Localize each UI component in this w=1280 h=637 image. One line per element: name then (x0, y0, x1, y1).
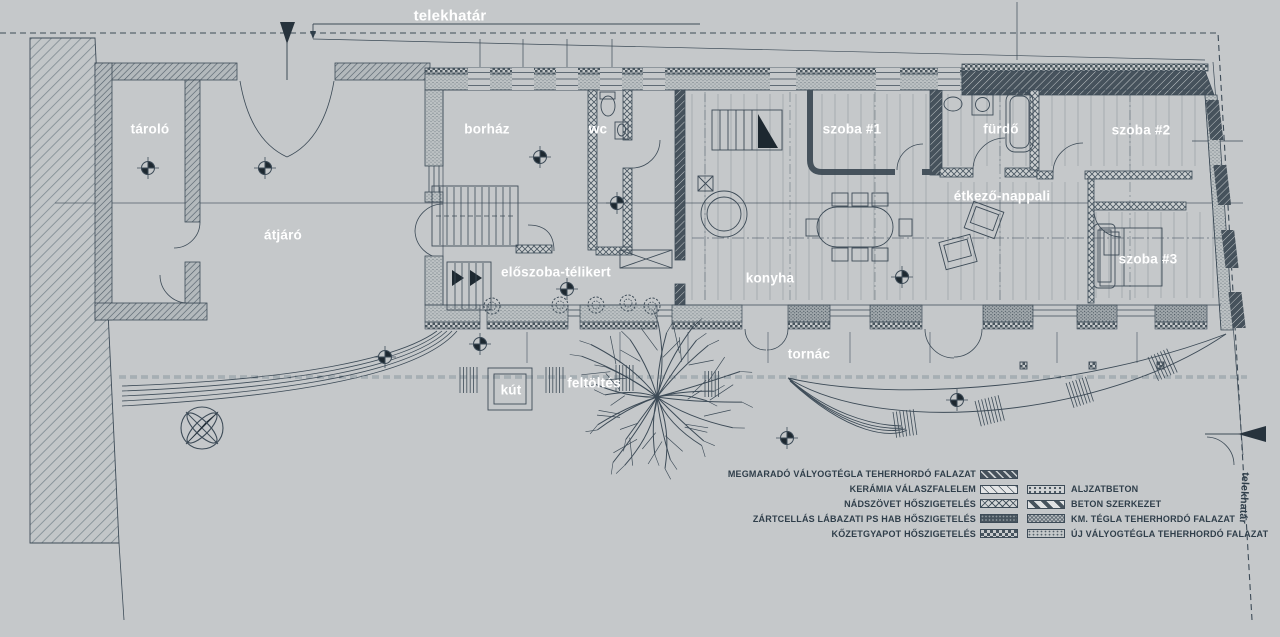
legend-row: BETON SZERKEZET (1027, 497, 1268, 512)
legend-row: ZÁRTCELLÁS LÁBAZATI PS HAB HŐSZIGETELÉS (660, 511, 1018, 526)
outbuilding-walls (95, 63, 430, 320)
legend-row: ALJZATBETON (1027, 482, 1268, 497)
legend-row: NÁDSZÖVET HŐSZIGETELÉS (660, 497, 1018, 512)
sofa (1094, 224, 1115, 288)
sink (944, 97, 962, 111)
label-wc: wc (589, 122, 607, 137)
label-konyha: konyha (746, 271, 794, 286)
old-adobe-wall (962, 71, 1214, 95)
swale (788, 334, 1226, 433)
legend-row: KŐZETGYAPOT HŐSZIGETELÉS (660, 526, 1018, 541)
legend-swatch-dot-stipple (1027, 485, 1065, 494)
label-atjaro: átjáró (264, 228, 302, 243)
legend-swatch-dense-dark (980, 514, 1018, 523)
label-tornac: tornác (788, 347, 830, 362)
survey-flag-right (1238, 426, 1266, 442)
legend-swatch-light-stipple (1027, 529, 1065, 538)
legend-left-column: MEGMARADÓ VÁLYOGTÉGLA TEHERHORDÓ FALAZAT… (660, 467, 1018, 541)
legend-row: ÚJ VÁLYOGTÉGLA TEHERHORDÓ FALAZAT (1027, 526, 1268, 541)
staircase (432, 186, 518, 246)
floor-plan-canvas (0, 0, 1280, 637)
label-telekhatar-top: telekhatár (414, 8, 487, 25)
legend-swatch-thin-diagonal (980, 485, 1018, 494)
legend-row: MEGMARADÓ VÁLYOGTÉGLA TEHERHORDÓ FALAZAT (660, 467, 1018, 482)
masonry-stove (712, 110, 782, 150)
label-szoba3: szoba #3 (1119, 252, 1178, 267)
main-building (425, 64, 1246, 363)
porch-wall-blocks (425, 305, 1207, 329)
legend-row: KM. TÉGLA TEHERHORDÓ FALAZAT (1027, 512, 1268, 527)
dining-table (817, 207, 893, 247)
label-feltoltes: feltöltés (567, 376, 621, 391)
label-tarolo: tároló (131, 122, 170, 137)
site-plan-drawing: telekhatár tároló átjáró borház wc elősz… (0, 0, 1280, 637)
label-etkezo: étkező-nappali (954, 189, 1051, 204)
label-borhaz: borház (464, 122, 509, 137)
legend-swatch-checkerboard (980, 529, 1018, 538)
tree (570, 311, 753, 480)
label-eloszoba: előszoba-télikert (501, 265, 611, 280)
legend-swatch-diag-dark-hatch (980, 470, 1018, 479)
legend-right-column: ALJZATBETON BETON SZERKEZET KM. TÉGLA TE… (1027, 482, 1268, 541)
label-leader (313, 24, 700, 33)
gate-arcs (287, 81, 334, 157)
legend-row: KERÁMIA VÁLASZFALELEM (660, 482, 1018, 497)
label-szoba2: szoba #2 (1112, 123, 1171, 138)
legend-swatch-wide-diagonal (1027, 500, 1065, 509)
label-furdo: fürdő (983, 122, 1019, 137)
compass-icon (181, 407, 223, 449)
label-szoba1: szoba #1 (823, 122, 882, 137)
legend-swatch-diamond-crosshatch (980, 499, 1018, 508)
survey-markers (137, 146, 968, 449)
label-kut: kút (501, 383, 522, 398)
legend-swatch-fine-crosshatch (1027, 514, 1065, 523)
curved-path (122, 331, 457, 406)
outbuilding-doors (160, 81, 443, 303)
fence-line (313, 39, 1205, 60)
